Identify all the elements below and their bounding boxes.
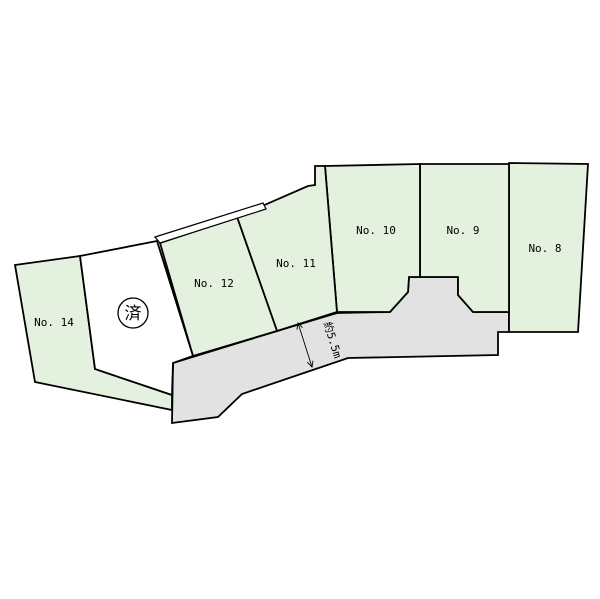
plot-no12-label: No. 12: [194, 277, 234, 290]
plot-no8-label: No. 8: [528, 242, 561, 255]
plot-no14-label: No. 14: [34, 316, 74, 329]
plot-no9-label: No. 9: [446, 224, 479, 237]
plot-no10: [325, 164, 420, 312]
sold-stamp-text: 済: [125, 304, 142, 324]
plot-no11-label: No. 11: [276, 257, 316, 270]
land-plot-map: No. 8 No. 9 No. 10 No. 11 No. 12 No. 14 …: [0, 0, 600, 599]
plot-no10-label: No. 10: [356, 224, 396, 237]
